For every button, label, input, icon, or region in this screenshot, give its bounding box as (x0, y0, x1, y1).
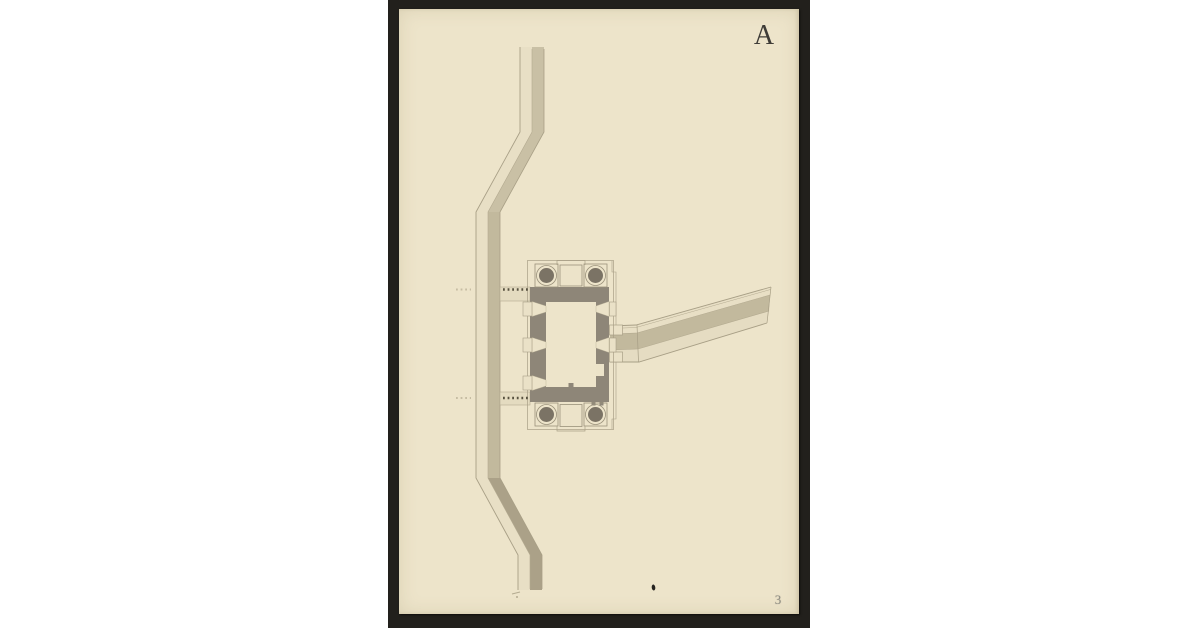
north-towers (535, 261, 607, 288)
east-wall-recess (596, 364, 604, 376)
drawing-sheet: A (399, 9, 799, 614)
page-number: 3 (771, 592, 785, 608)
black-mat: A (388, 0, 810, 628)
east-curtain-wall (610, 287, 772, 362)
gatehouse-plan (523, 261, 616, 432)
rampart-wash-middle (488, 212, 500, 478)
wall-tooth (600, 402, 604, 406)
rampart-light-face (476, 47, 532, 590)
wall-tip-smudge (512, 592, 520, 598)
ink-blot (651, 584, 655, 590)
east-wall-junction-block-upper (610, 325, 623, 335)
north-gate-hall (560, 265, 582, 286)
courtyard-nub (569, 383, 574, 388)
fortification-plan-drawing (399, 9, 799, 614)
south-gate-hall (560, 405, 582, 427)
east-wall-junction-block-lower (610, 352, 623, 362)
tower-shaft (539, 407, 554, 422)
tower-shaft (588, 268, 603, 283)
tower-shaft (588, 407, 603, 422)
scan-canvas: A (0, 0, 1200, 628)
south-towers (535, 403, 607, 431)
tower-shaft (539, 268, 554, 283)
